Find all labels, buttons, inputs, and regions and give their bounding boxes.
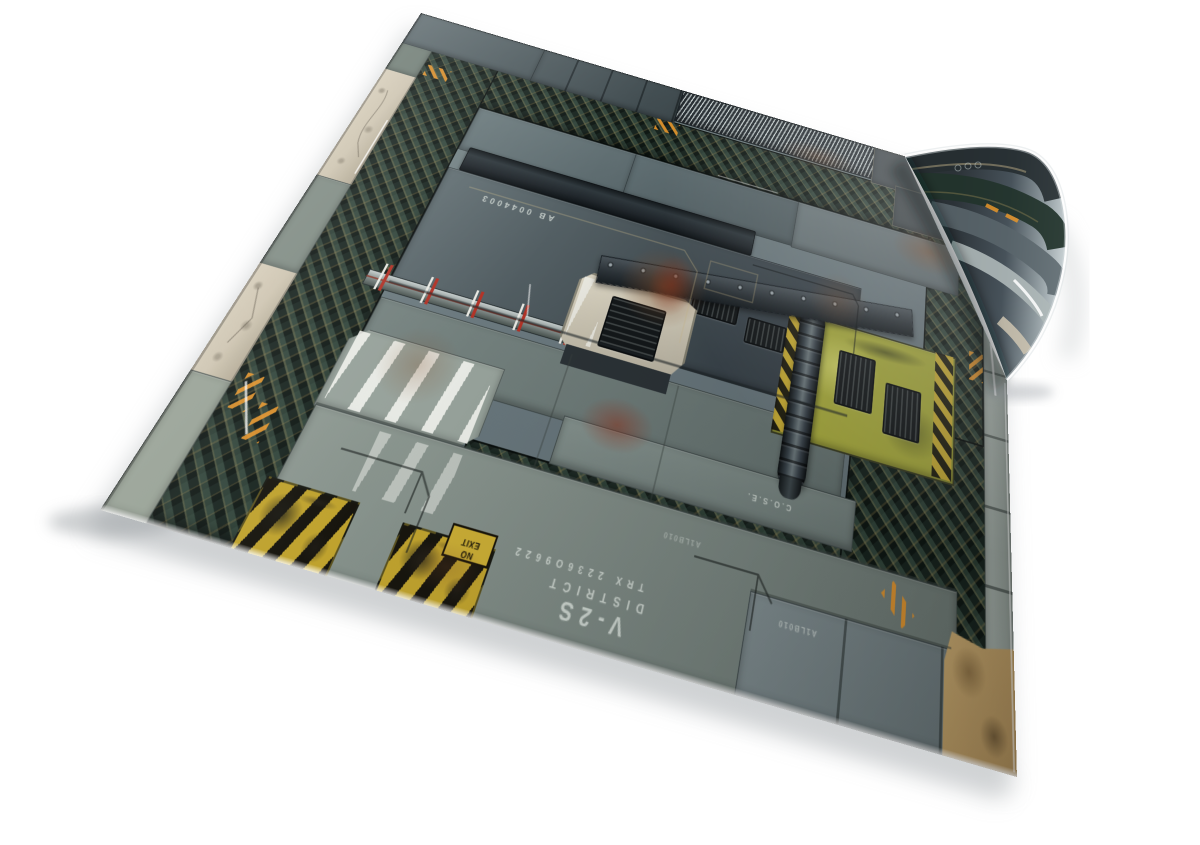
curled-corner [0, 0, 1200, 845]
product-photo-stage: AB 0044003 C.O.S.E. [0, 0, 1200, 845]
flap-tip-shadow [986, 384, 1054, 400]
